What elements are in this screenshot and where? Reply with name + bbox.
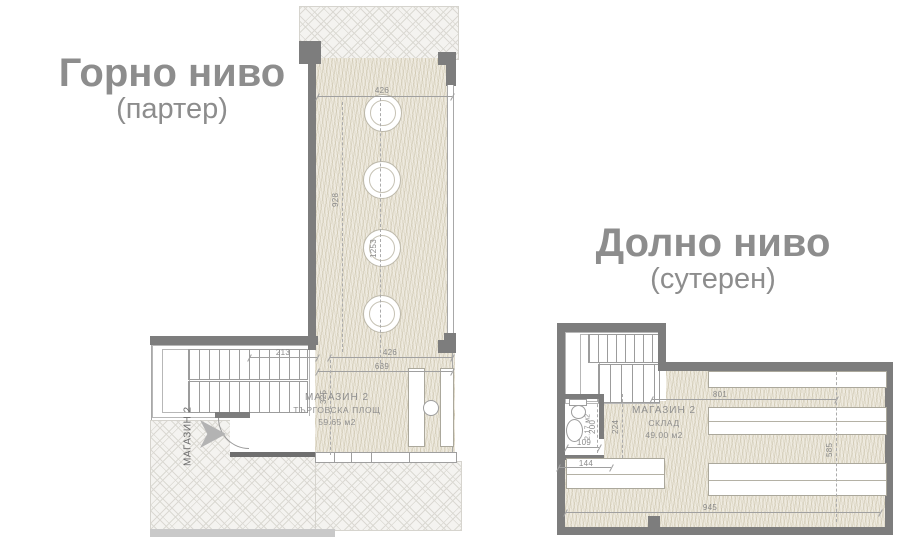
dim-label-basement-top-width: 801 [700, 391, 740, 399]
dim-label-room-total: 639 [352, 363, 412, 371]
storefront-window-band [315, 452, 457, 463]
window-right-strip [447, 85, 454, 333]
lower-room-type: СКЛАД [599, 419, 729, 428]
dim-line-top-width [318, 96, 452, 97]
dim-line-basement-right-height [836, 372, 837, 522]
shop-fixture-right [440, 368, 454, 447]
sidewalk-edge [150, 529, 335, 537]
dim-line-shaft-left [342, 102, 343, 352]
wall-stair-hall-top [150, 336, 318, 345]
dim-label-stair-run: 213 [254, 349, 312, 357]
storage-rack [708, 463, 887, 496]
upper-exterior-lattice-top [299, 6, 459, 60]
dim-line-room-total [318, 371, 452, 372]
dim-label-wc-depth: 200 [588, 412, 598, 442]
upper-plan-title: Горно ниво (партер) [28, 52, 316, 126]
dim-line-stair-run [250, 357, 317, 358]
basement-stair-flight-1 [588, 334, 660, 363]
dim-label-basement-bottom-width: 945 [688, 504, 732, 512]
window-mullion [334, 453, 335, 462]
upper-room-label: МАГАЗИН 2 ТЪРГОВСКА ПЛОЩ 59.65 м2 [278, 393, 396, 426]
window-mullion [409, 453, 410, 462]
entrance-threshold [230, 452, 315, 457]
dim-line-room-width [330, 357, 452, 358]
upper-exterior-lattice-bottom [315, 461, 462, 531]
wall-shaft-right-top [446, 55, 456, 86]
wall-shaft-left [308, 58, 316, 350]
lower-plan-title: Долно ниво (сутерен) [558, 222, 868, 296]
entrance-label: МАГАЗИН 2 [180, 396, 196, 476]
window-mullion [371, 453, 372, 462]
dim-label-room-width: 426 [360, 349, 420, 357]
lower-plan-title-sub: (сутерен) [558, 264, 868, 296]
column [364, 94, 402, 132]
wall-basement-pier [648, 516, 660, 527]
dim-label-shaft-right: 1253 [369, 232, 379, 266]
window-mullion [351, 453, 352, 462]
dim-label-basement-right-height: 585 [825, 432, 835, 468]
upper-plan-title-main: Горно ниво [28, 52, 316, 94]
wall-basement-bottom [557, 527, 893, 535]
floor-plans-canvas: Горно ниво (партер) МАГАЗИН 2 42 [0, 0, 900, 540]
entrance-door-lintel [215, 412, 250, 418]
basement-stair-flight-2 [598, 364, 660, 403]
shop-fixture-circle [423, 400, 439, 416]
storage-rack [708, 407, 887, 435]
wall-basement-top-left [557, 323, 666, 332]
upper-plan-title-sub: (партер) [28, 94, 316, 126]
dim-line-basement-bottom-width [566, 512, 880, 513]
dim-line-shaft-right [380, 98, 381, 368]
wall-basement-top-right [658, 362, 893, 371]
column [363, 161, 401, 199]
lower-room-label: МАГАЗИН 2 СКЛАД 49.00 м2 [599, 406, 729, 439]
upper-room-area: 59.65 м2 [278, 418, 396, 427]
dim-line-wc-width [567, 447, 599, 448]
wall-basement-left [557, 323, 565, 535]
dim-label-shaft-left: 928 [331, 185, 341, 215]
storage-rack [708, 371, 887, 388]
dim-label-entry-width: 144 [570, 460, 602, 468]
column [363, 295, 401, 333]
dim-line-basement-top-width [652, 399, 836, 400]
dim-label-top-width: 426 [358, 87, 406, 95]
lower-plan-title-main: Долно ниво [558, 222, 868, 264]
wall-stair-hall-left [151, 345, 152, 420]
lower-room-name: МАГАЗИН 2 [599, 406, 729, 416]
wall-pier-lower-right [438, 340, 456, 353]
lower-room-area: 49.00 м2 [599, 431, 729, 440]
upper-room-name: МАГАЗИН 2 [278, 393, 396, 403]
upper-room-type: ТЪРГОВСКА ПЛОЩ [278, 406, 396, 415]
